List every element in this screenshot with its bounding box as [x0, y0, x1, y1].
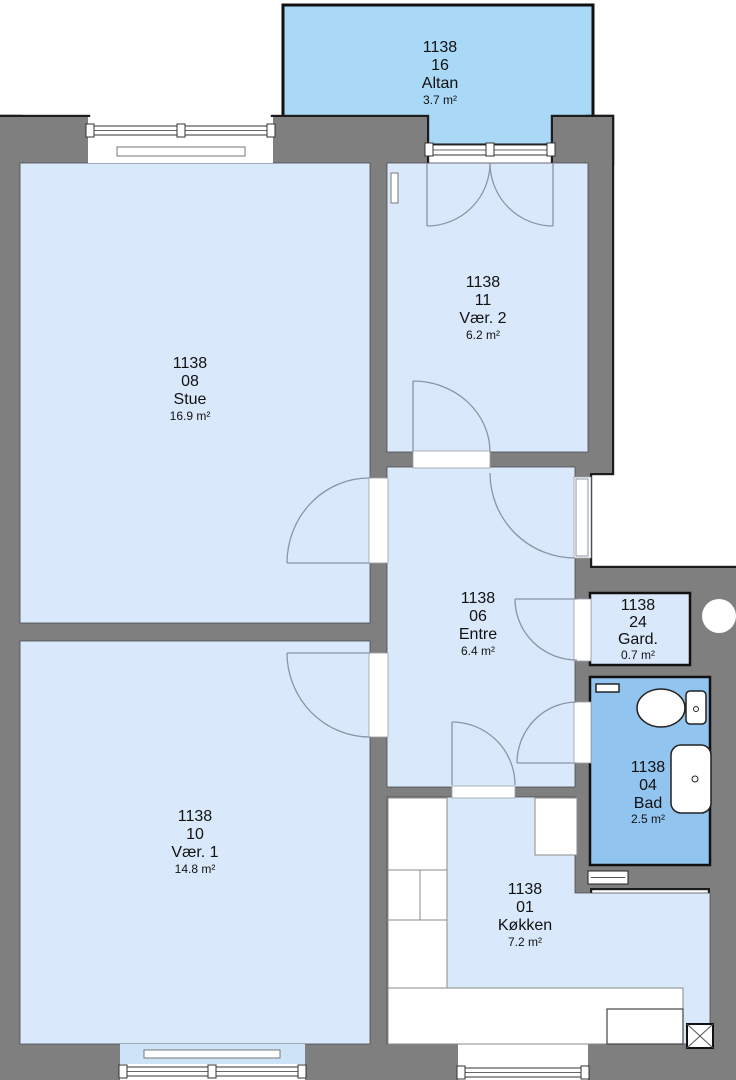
room-area: 0.7 m² — [621, 648, 655, 662]
opening-vaer1 — [369, 653, 388, 737]
vaer1-radiator — [144, 1050, 280, 1058]
room-name: Bad — [634, 795, 662, 812]
opening-bad — [574, 702, 591, 763]
room-no: 01 — [516, 899, 534, 916]
room-id: 1138 — [178, 808, 213, 825]
kitchen-counter-left — [388, 798, 447, 988]
room-no: 08 — [181, 373, 199, 390]
room-name: Stue — [174, 391, 207, 408]
sink-icon — [671, 745, 711, 813]
room-id: 1138 — [461, 590, 496, 607]
room-id: 1138 — [508, 881, 543, 898]
room-id: 1138 — [423, 39, 458, 56]
room-no: 06 — [469, 608, 487, 625]
room-name: Vær. 2 — [459, 310, 506, 327]
room-area: 16.9 m² — [170, 409, 211, 423]
round-shaft — [702, 599, 736, 633]
room-no: 04 — [639, 777, 657, 794]
room-no: 24 — [629, 614, 647, 631]
kitchen-counter-right — [535, 798, 577, 855]
opening-vaer2 — [413, 451, 490, 468]
room-name: Vær. 1 — [171, 844, 218, 861]
opening-stue — [369, 478, 388, 563]
room-name: Entre — [459, 626, 497, 643]
toilet-tank-icon — [686, 691, 706, 724]
room-id: 1138 — [466, 274, 501, 291]
opening-koekken — [452, 786, 515, 798]
room-id: 1138 — [631, 759, 666, 776]
room-area: 2.5 m² — [631, 812, 665, 826]
room-no: 16 — [431, 57, 449, 74]
room-name: Altan — [422, 75, 458, 92]
bad-floor-vent — [588, 871, 628, 884]
room-name: Gard. — [618, 631, 658, 648]
room-area: 6.4 m² — [461, 644, 495, 658]
room-no: 10 — [186, 826, 204, 843]
kitchen-appliance — [607, 1009, 683, 1044]
toilet-bowl-icon — [637, 689, 685, 727]
floor-plan-canvas: 1138 16 Altan 3.7 m² 1138 08 Stue 16.9 m… — [0, 0, 736, 1080]
floor-plan: 1138 16 Altan 3.7 m² 1138 08 Stue 16.9 m… — [0, 0, 736, 1080]
opening-gard — [574, 599, 591, 661]
room-name: Køkken — [498, 917, 552, 934]
room-no: 11 — [475, 292, 492, 309]
room-area: 7.2 m² — [508, 935, 542, 949]
vaer2-radiator — [391, 173, 398, 203]
room-id: 1138 — [173, 355, 208, 372]
room-area: 6.2 m² — [466, 328, 500, 342]
duct-shaft — [687, 1024, 713, 1048]
room-id: 1138 — [621, 597, 656, 614]
stue-radiator — [117, 147, 245, 156]
room-area: 14.8 m² — [175, 862, 216, 876]
bad-vent — [596, 684, 619, 692]
room-area: 3.7 m² — [423, 93, 457, 107]
